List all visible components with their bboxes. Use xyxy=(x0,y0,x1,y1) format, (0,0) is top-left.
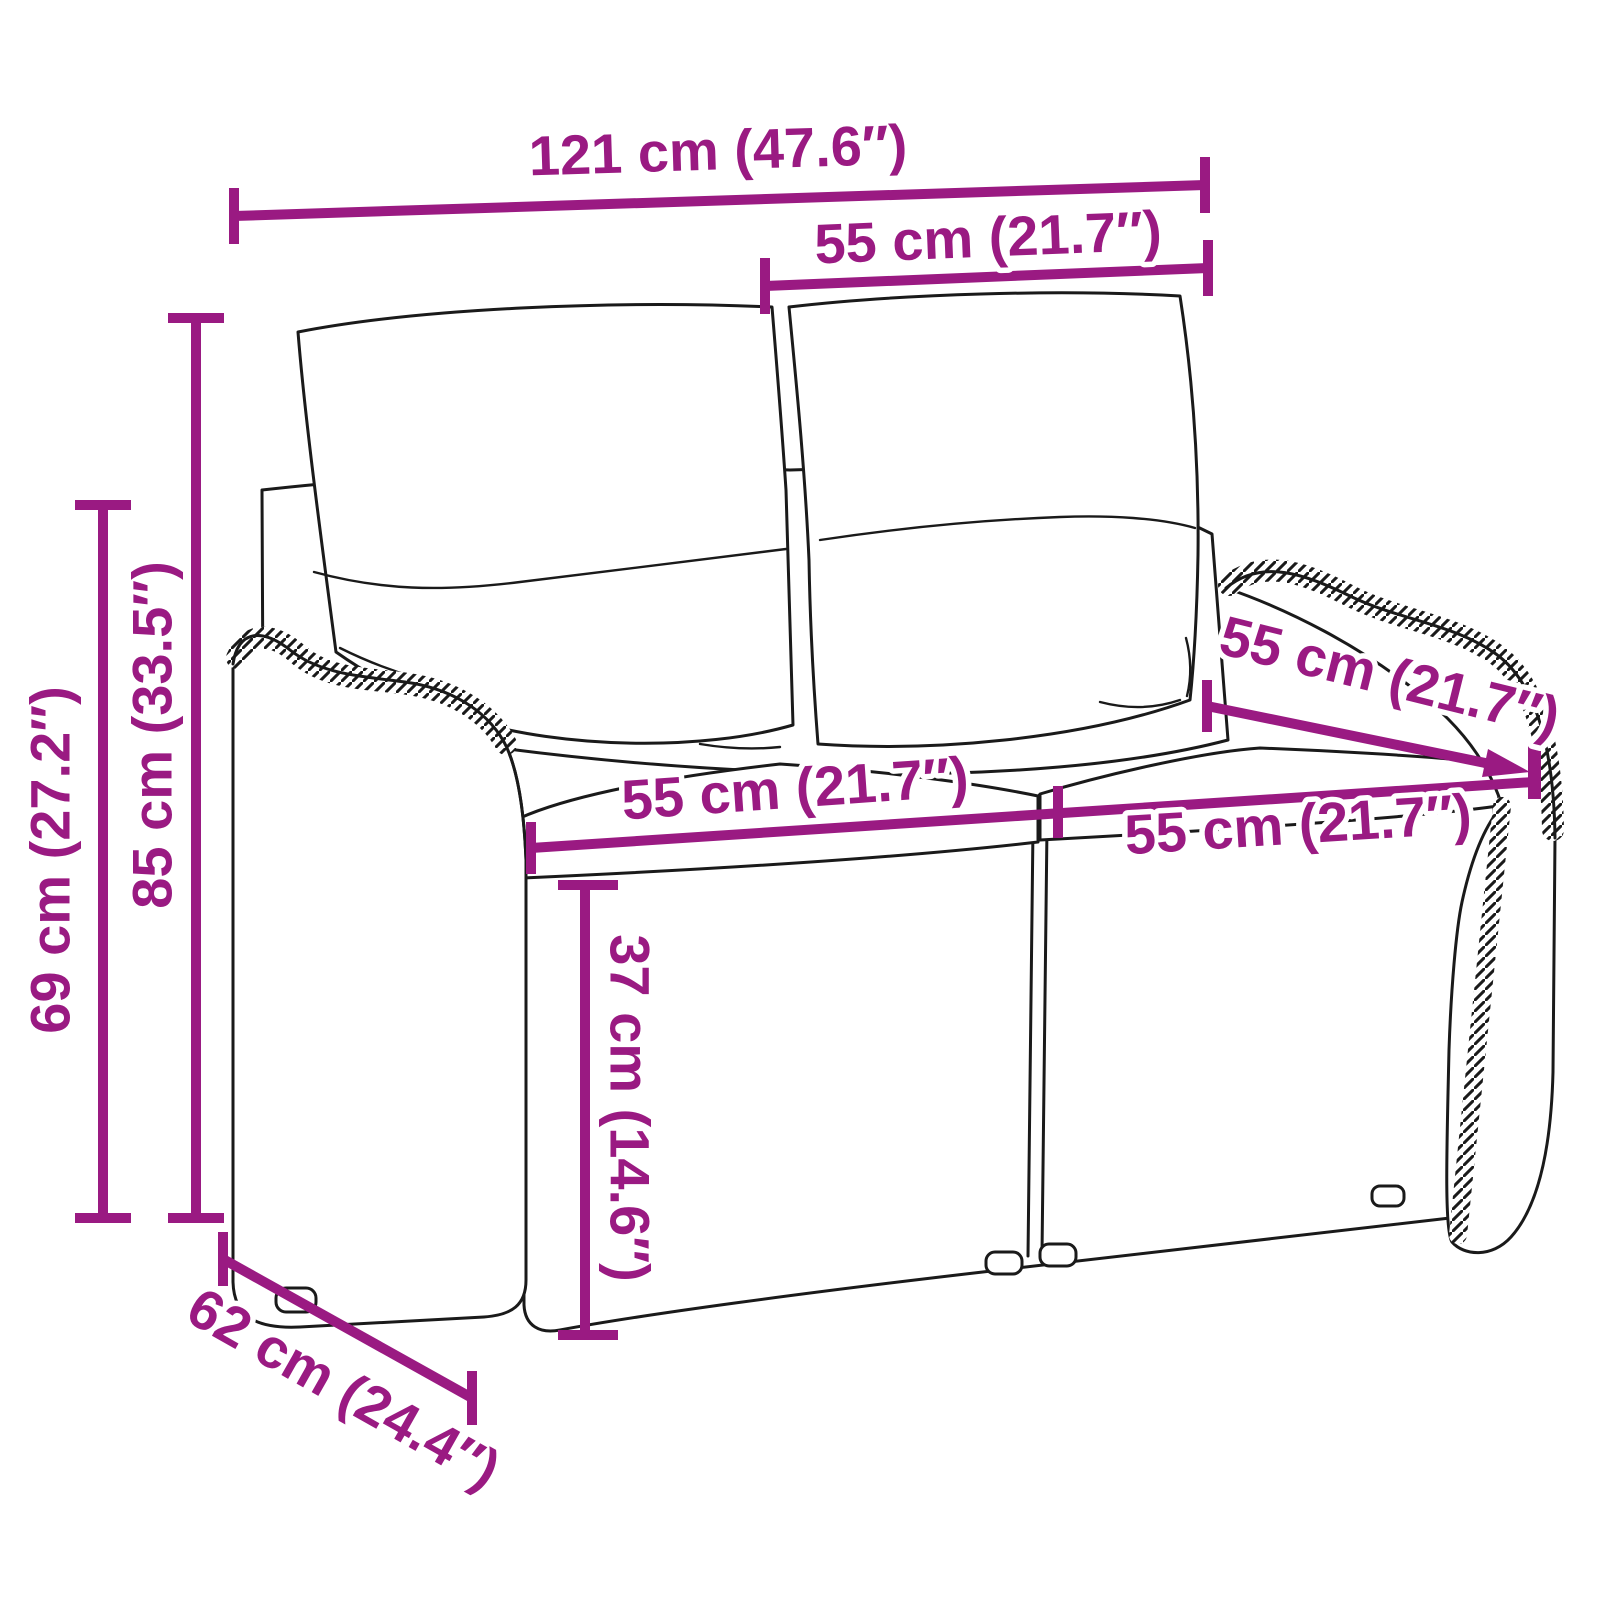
dim-label-seat-height: 37 cm (14.6″) xyxy=(599,934,662,1281)
product-dimension-diagram: 121 cm (47.6″) 55 cm (21.7″) 85 cm (33.5… xyxy=(0,0,1600,1600)
dim-label-armrest-height: 69 cm (27.2″) xyxy=(19,686,82,1033)
dim-label-backrest-width: 55 cm (21.7″) xyxy=(813,199,1163,276)
bench-diagram-svg: 121 cm (47.6″) 55 cm (21.7″) 85 cm (33.5… xyxy=(0,0,1600,1600)
dim-total-height: 85 cm (33.5″) xyxy=(121,318,225,1218)
base-wicker-front xyxy=(523,792,1494,1331)
dim-armrest-height: 69 cm (27.2″) xyxy=(19,505,132,1218)
dim-label-overall-width: 121 cm (47.6″) xyxy=(528,113,908,188)
dim-label-total-height: 85 cm (33.5″) xyxy=(121,561,184,908)
armrest-left xyxy=(233,636,526,1328)
